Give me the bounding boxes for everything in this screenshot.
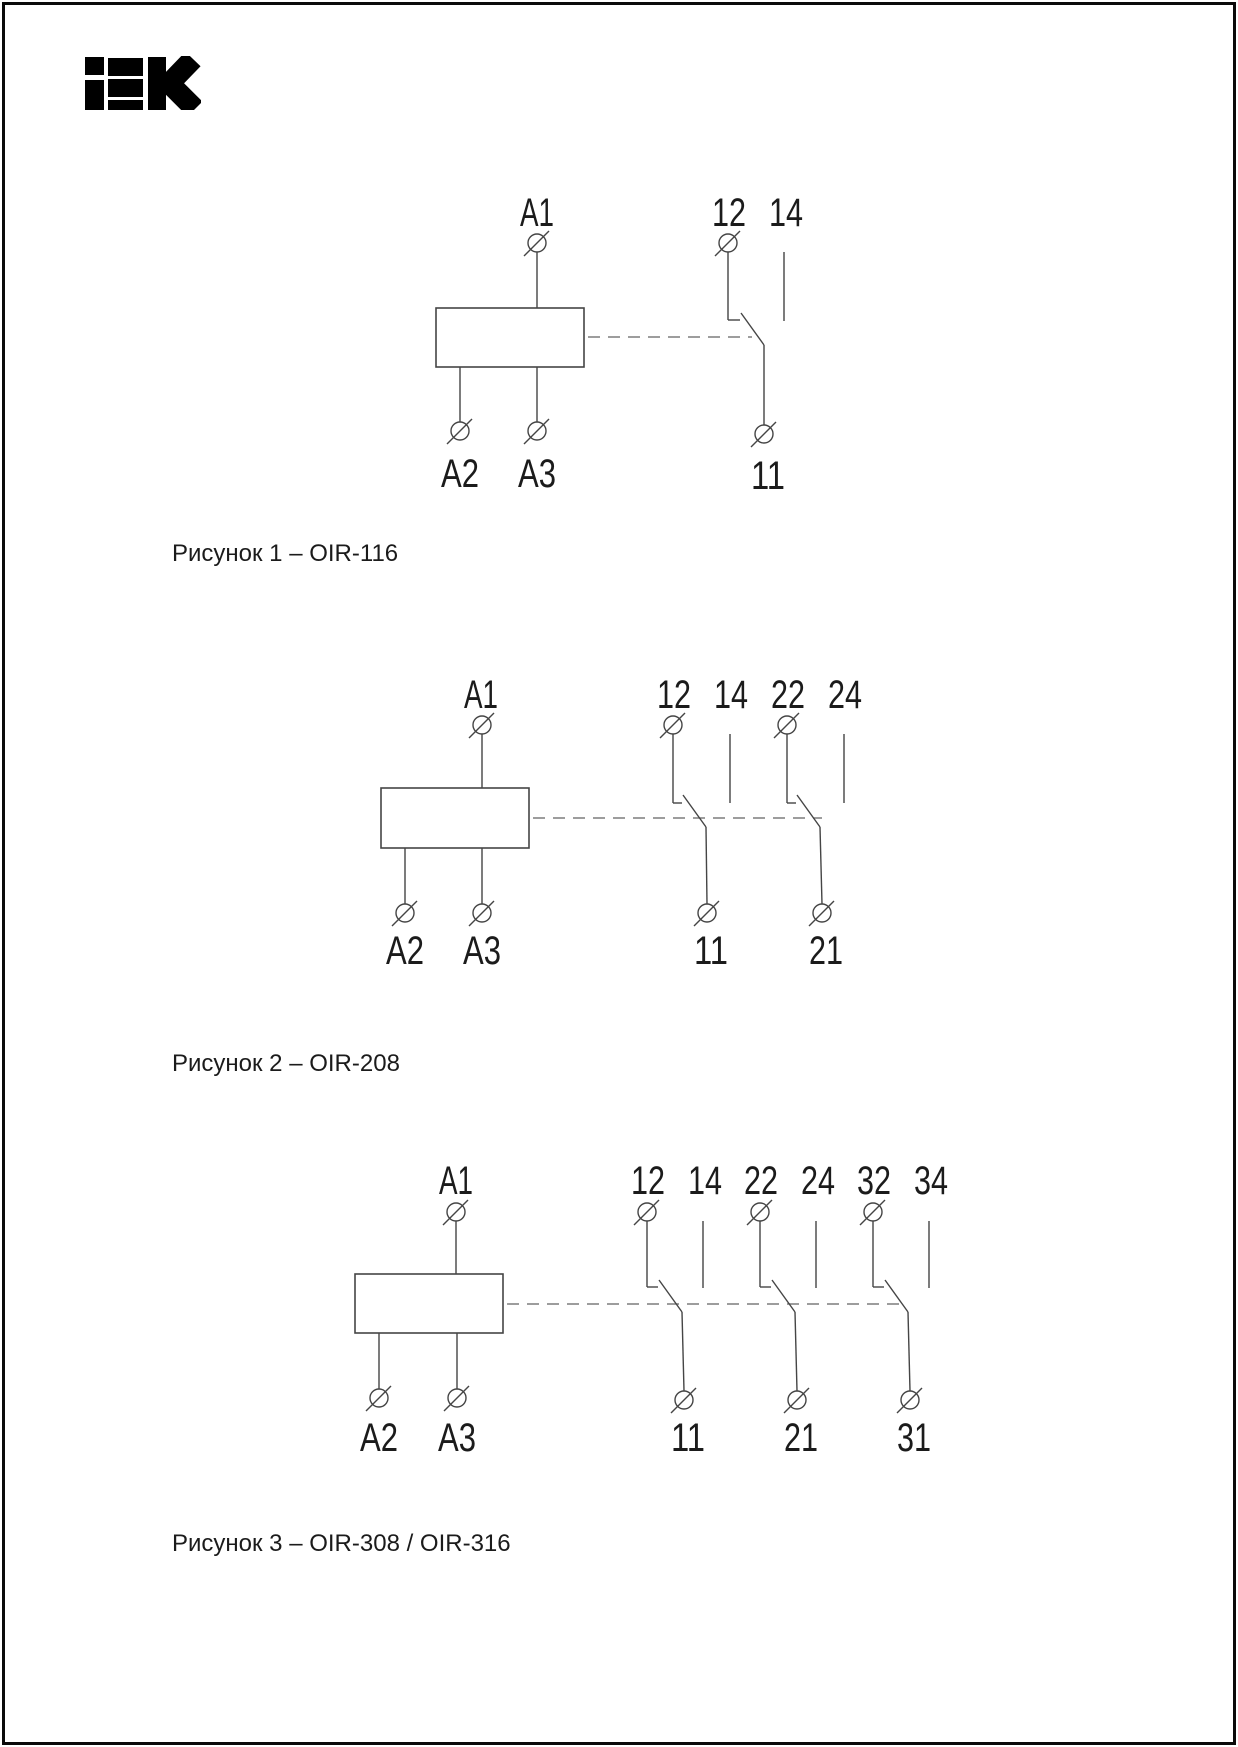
screw-terminal-icon [469,901,494,926]
screw-terminal-icon [897,1388,922,1413]
contact-blade [683,795,706,827]
relay-coil-box [436,308,584,367]
terminal-label-24: 24 [801,1159,835,1203]
screw-terminal-icon [751,422,776,447]
screw-terminal-icon [392,901,417,926]
contact-blade [885,1280,908,1312]
screw-terminal-icon [447,419,472,444]
terminal-label-a3: A3 [438,1416,476,1460]
terminal-label-21: 21 [784,1416,818,1460]
screw-terminal-icon [809,901,834,926]
terminal-label-34: 34 [914,1159,948,1203]
screw-terminal-icon [694,901,719,926]
terminal-label-11: 11 [751,454,785,498]
contact-blade [741,313,764,345]
terminal-label-11: 11 [694,929,728,973]
terminal-label-a2: A2 [441,452,479,496]
terminal-label-14: 14 [688,1159,722,1203]
diagram-oir-116: A1 A2 A3 12 11 14 [0,180,1238,510]
relay-coil-box [381,788,529,848]
terminal-label-12: 12 [631,1159,665,1203]
figure-2-caption: Рисунок 2 – OIR-208 [172,1050,400,1078]
terminal-label-22: 22 [771,673,805,717]
terminal-label-14: 14 [769,191,803,235]
terminal-label-a3: A3 [518,452,556,496]
terminal-label-21: 21 [809,929,843,973]
screw-terminal-icon [671,1388,696,1413]
logo-k-lower-arm [169,83,195,109]
terminal-label-12: 12 [712,191,746,235]
terminal-label-11: 11 [671,1416,705,1460]
screw-terminal-icon [366,1386,391,1411]
figure-3-caption: Рисунок 3 – OIR-308 / OIR-316 [172,1530,511,1558]
terminal-label-a1: A1 [439,1159,473,1203]
terminal-label-22: 22 [744,1159,778,1203]
logo-i-dot [85,57,104,75]
iek-logo-icon [85,56,201,110]
terminal-label-24: 24 [828,673,862,717]
terminal-label-a1: A1 [520,191,554,235]
screw-terminal-icon [784,1388,809,1413]
logo-e-bar [108,100,143,110]
wire [706,827,707,904]
terminal-label-32: 32 [857,1159,891,1203]
wire [820,827,822,904]
logo-e-bar [108,58,143,76]
terminal-label-a3: A3 [463,929,501,973]
terminal-label-a1: A1 [464,673,498,717]
diagram-oir-308-316: A1 A2 A3 12 11 14 22 21 24 32 [0,1150,1238,1480]
terminal-label-a2: A2 [360,1416,398,1460]
contact-blade [797,795,820,827]
screw-terminal-icon [444,1386,469,1411]
contact-blade [772,1280,795,1312]
wire [682,1312,684,1391]
terminal-label-31: 31 [897,1416,931,1460]
relay-coil-box [355,1274,503,1333]
screw-terminal-icon [524,419,549,444]
figure-1-caption: Рисунок 1 – OIR-116 [172,540,398,568]
diagram-oir-208: A1 A2 A3 12 11 14 22 21 24 [0,660,1238,990]
terminal-label-a2: A2 [386,929,424,973]
wire [908,1312,910,1391]
wire [795,1312,797,1391]
logo-e-bar [108,79,143,97]
page: A1 A2 A3 12 11 14 Рисунок 1 – OIR-116 A1 [0,0,1238,1747]
terminal-label-14: 14 [714,673,748,717]
logo-i-body [85,80,104,110]
contact-blade [659,1280,682,1312]
terminal-label-12: 12 [657,673,691,717]
